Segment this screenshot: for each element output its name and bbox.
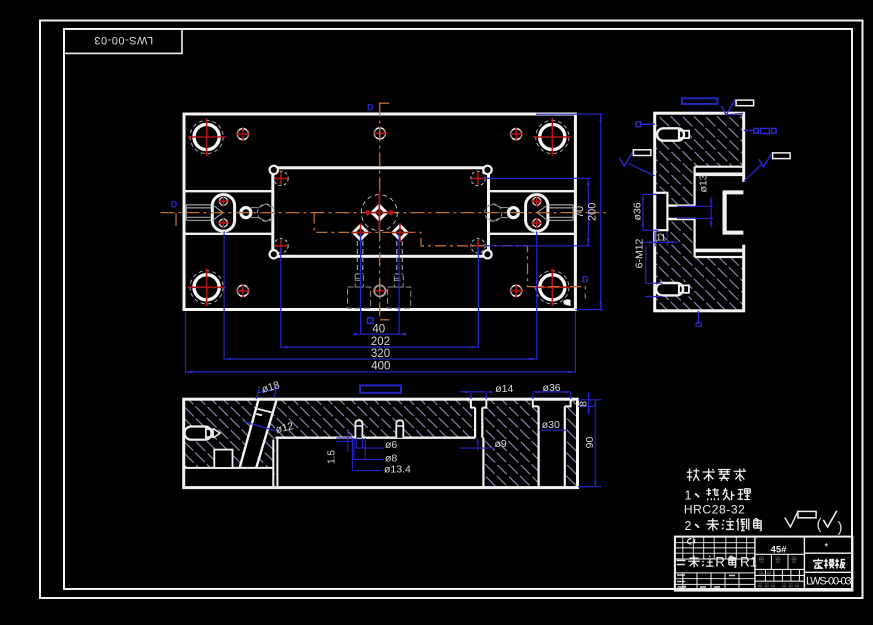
- svg-text:400: 400: [371, 361, 390, 373]
- svg-text:HRC28-32: HRC28-32: [684, 502, 746, 516]
- svg-text:ø13.4: ø13.4: [384, 464, 411, 476]
- svg-text:ø6: ø6: [385, 439, 397, 451]
- svg-text:40: 40: [372, 323, 385, 335]
- svg-text:2: 2: [685, 519, 692, 533]
- svg-text:): ): [838, 519, 843, 536]
- svg-text:8: 8: [579, 401, 590, 407]
- svg-text:ø36: ø36: [631, 202, 643, 220]
- svg-text:ø9: ø9: [495, 438, 507, 450]
- svg-text:90: 90: [584, 437, 596, 449]
- svg-text:ø8: ø8: [385, 452, 397, 464]
- svg-text:202: 202: [371, 336, 390, 348]
- svg-text:ø30: ø30: [542, 419, 560, 431]
- svg-text:*: *: [824, 542, 828, 553]
- svg-text:R1: R1: [740, 555, 757, 570]
- svg-text:200: 200: [586, 203, 598, 221]
- svg-text:1.5: 1.5: [326, 450, 337, 464]
- svg-text:6-M12: 6-M12: [634, 238, 646, 268]
- svg-text:70: 70: [574, 206, 586, 218]
- svg-text:LWS-00-03: LWS-00-03: [806, 575, 852, 587]
- svg-text:320: 320: [371, 348, 390, 360]
- svg-text:(: (: [817, 516, 822, 533]
- svg-text:11: 11: [656, 233, 666, 244]
- svg-text:D: D: [367, 103, 374, 113]
- svg-text:ø13: ø13: [698, 174, 710, 192]
- svg-text:ø14: ø14: [495, 383, 513, 395]
- svg-text:1: 1: [685, 489, 692, 503]
- svg-text:ø36: ø36: [543, 382, 561, 394]
- svg-text:D: D: [582, 275, 589, 285]
- svg-text:R: R: [715, 555, 725, 570]
- svg-text:LWS-00-03: LWS-00-03: [94, 34, 153, 46]
- svg-text:45#: 45#: [771, 545, 788, 556]
- svg-text:D: D: [171, 200, 178, 210]
- svg-text:D: D: [694, 321, 704, 328]
